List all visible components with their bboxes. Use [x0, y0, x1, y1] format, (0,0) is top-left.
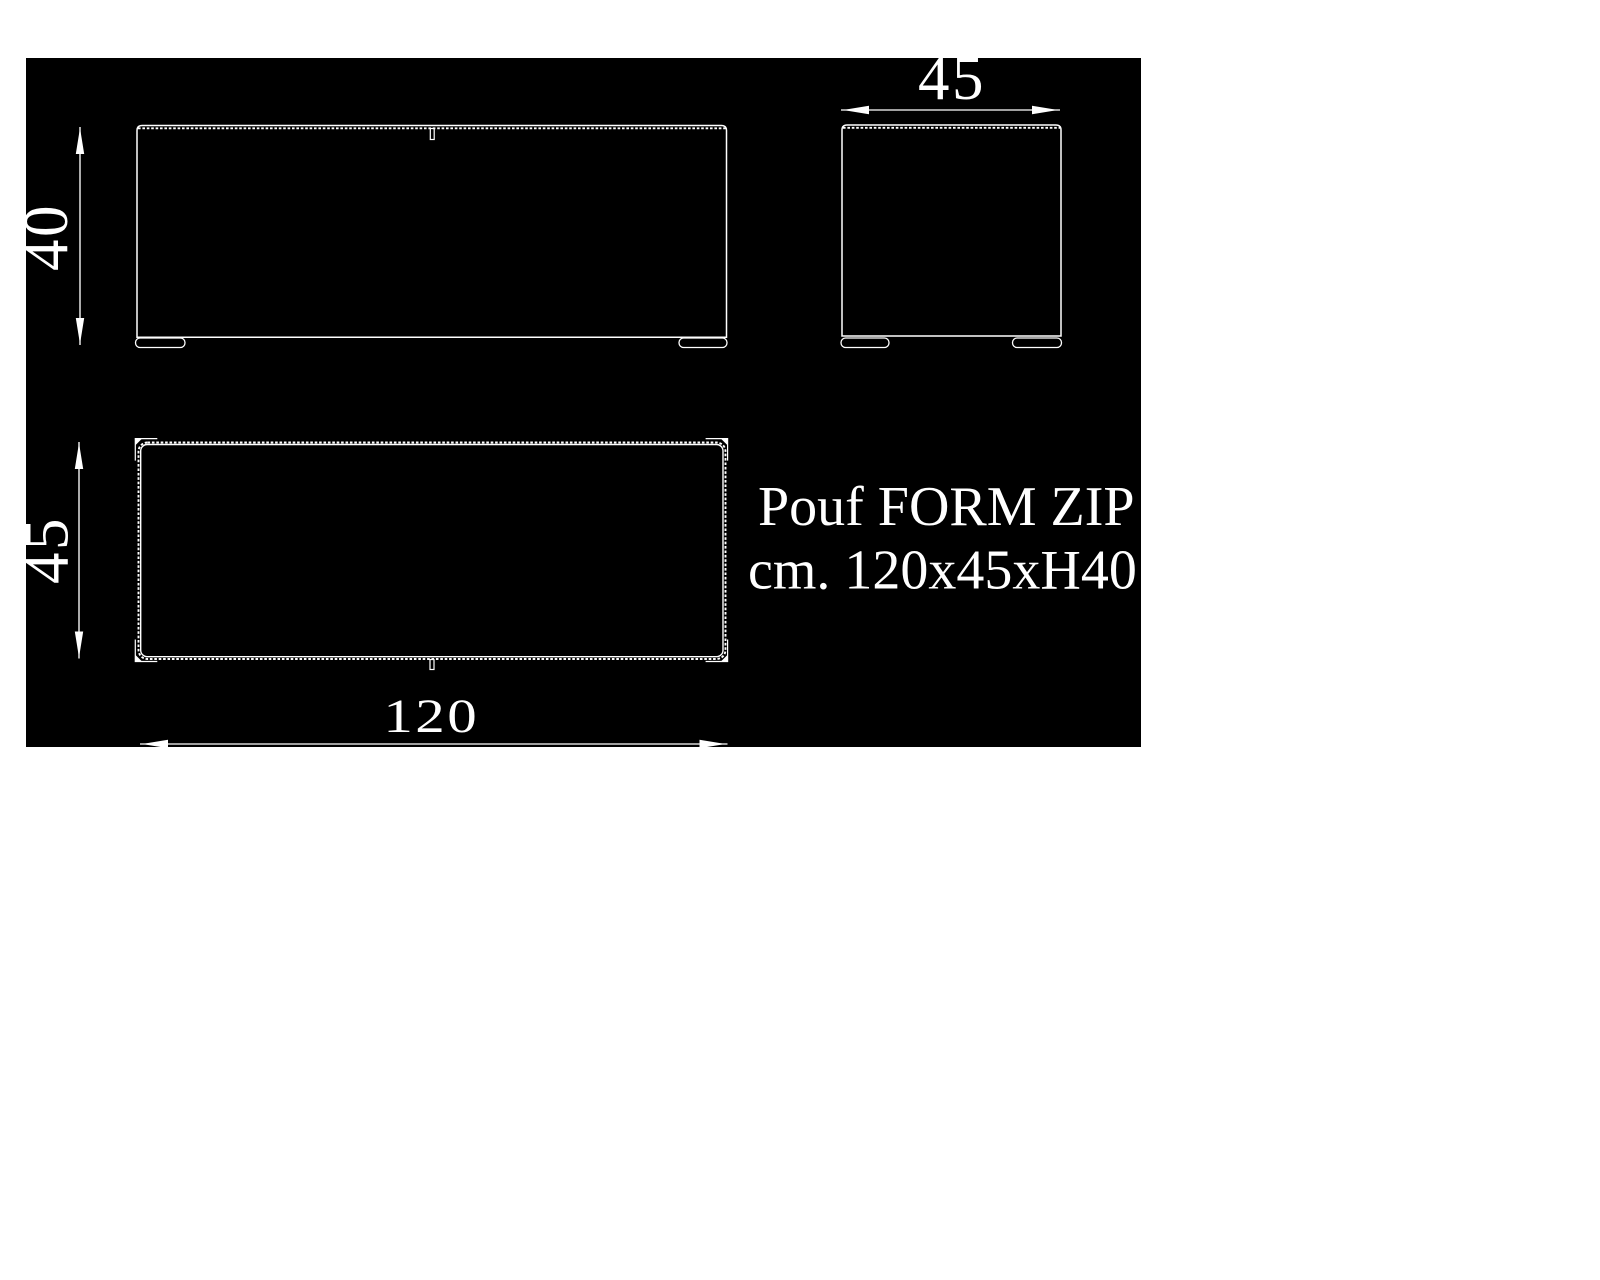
svg-text:120: 120	[383, 690, 479, 743]
svg-text:Pouf FORM ZIP: Pouf FORM ZIP	[758, 476, 1135, 538]
svg-text:45: 45	[918, 58, 986, 113]
svg-text:cm. 120x45xH40: cm. 120x45xH40	[748, 540, 1137, 602]
svg-text:45: 45	[26, 516, 81, 584]
svg-text:40: 40	[26, 203, 81, 271]
